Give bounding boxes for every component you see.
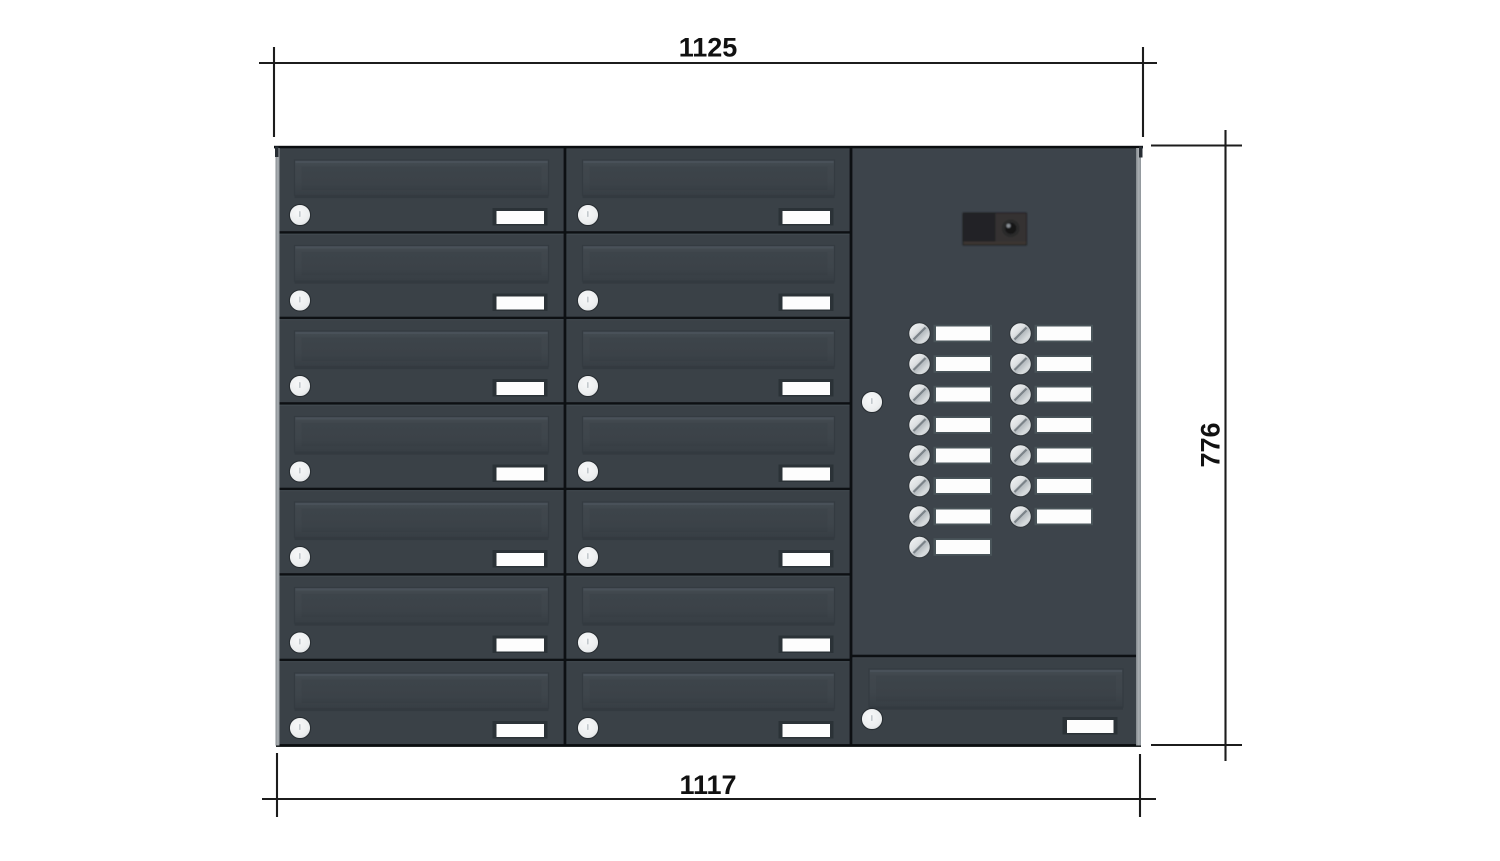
svg-text:776: 776 (1196, 422, 1226, 467)
svg-text:1117: 1117 (679, 770, 736, 800)
svg-text:1125: 1125 (679, 33, 738, 63)
